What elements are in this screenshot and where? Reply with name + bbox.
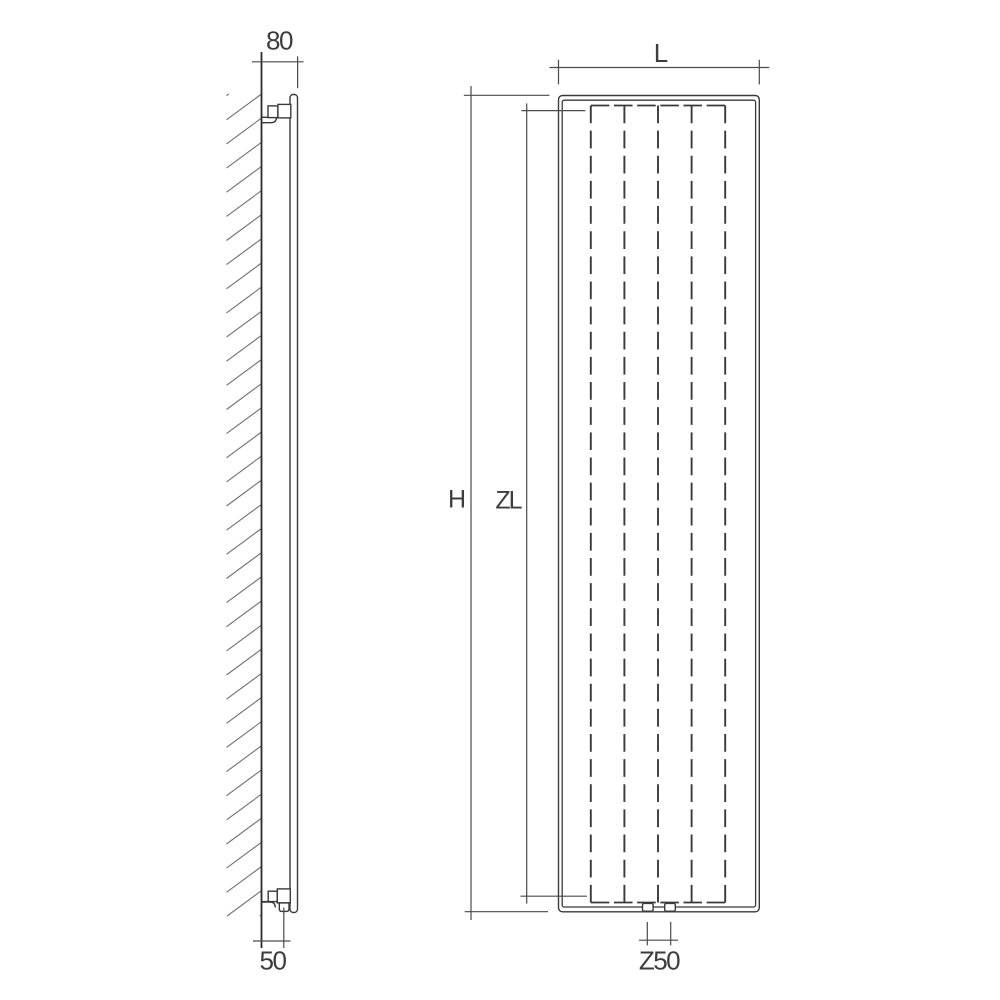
- svg-text:L: L: [654, 38, 668, 68]
- svg-text:Z50: Z50: [639, 946, 680, 976]
- svg-text:50: 50: [260, 946, 287, 976]
- svg-text:ZL: ZL: [495, 487, 522, 515]
- svg-text:80: 80: [266, 26, 293, 56]
- svg-text:H: H: [448, 486, 466, 514]
